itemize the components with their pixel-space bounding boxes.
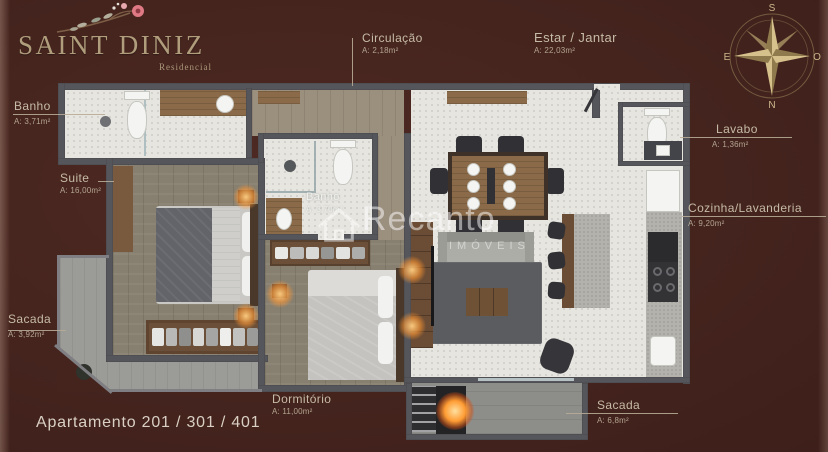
- logo-subtitle: Residencial: [128, 62, 212, 72]
- burner-icon: [666, 267, 675, 276]
- kitchen-island: [574, 214, 610, 308]
- lamp-glow-2: [233, 303, 259, 329]
- coffee-table: [466, 288, 508, 316]
- room-name: Circulação: [362, 31, 423, 46]
- wall-lavabo-top: [618, 102, 690, 107]
- floorplan-image: SAINT DINIZ Residencial S E O N Banho A:…: [0, 0, 828, 452]
- toilet-2: [333, 149, 353, 185]
- sink-2: [276, 208, 292, 230]
- sliding-glass-door: [478, 378, 574, 381]
- toilet-tank-2: [330, 140, 356, 148]
- left-edge-light: [0, 0, 10, 452]
- room-name: Banho: [306, 191, 342, 205]
- toilet-tank: [124, 91, 150, 100]
- suite-dresser: [113, 166, 133, 252]
- lavabo-sink: [656, 145, 670, 156]
- dining-chair: [546, 168, 564, 194]
- label-suite: Suite A: 16,00m²: [60, 171, 101, 196]
- lavabo-toilet-tank: [644, 108, 670, 116]
- room-name: Sacada: [597, 398, 640, 413]
- suite-bed-sheet: [212, 208, 240, 302]
- compass-rose-icon: S E O N: [720, 2, 824, 110]
- room-name: Banho: [14, 99, 51, 114]
- kitchen-sink: [650, 336, 676, 366]
- label-sacada-churrasqueira: Sacada: [597, 398, 640, 413]
- wall-sacada-bottom: [406, 434, 588, 440]
- label-sacada-esquerda: Sacada A: 3,92m²: [8, 312, 51, 340]
- balcony-rail-left: [57, 255, 60, 347]
- room-name: Lavabo: [716, 122, 758, 137]
- label-lavabo-area: A: 1,36m²: [712, 140, 748, 150]
- wall-lavabo-left: [618, 102, 623, 166]
- table-runner: [487, 168, 495, 204]
- balcony-rail-top: [57, 255, 109, 258]
- wall-suite-right: [258, 158, 265, 392]
- compass-n: N: [768, 100, 775, 110]
- compass-o: O: [813, 52, 821, 63]
- shower-head-icon: [100, 116, 111, 127]
- dorm-pillow-2: [378, 322, 393, 364]
- room-area: A: 22,03m²: [534, 46, 617, 56]
- wall-lavabo-bottom: [618, 161, 690, 166]
- plate: [467, 163, 480, 176]
- room-area: A: 2,18m²: [362, 46, 423, 56]
- grill-fire-glow: [436, 392, 474, 430]
- label-lavabo: Lavabo: [716, 122, 758, 137]
- label-leader-line: [352, 38, 353, 86]
- room-area: A: 3,71m²: [14, 117, 51, 127]
- balcony-rail-bottom: [110, 389, 262, 392]
- room-area: A: 6,8m²: [597, 416, 629, 426]
- bar-stool: [547, 221, 566, 240]
- tv-screen: [431, 246, 434, 326]
- compass-e: E: [724, 52, 731, 63]
- dorm-lamp-glow: [266, 280, 294, 308]
- label-banho-suite: Banho A: 3,71m²: [14, 99, 51, 127]
- burner-icon: [666, 283, 675, 292]
- lamp-glow: [233, 184, 259, 210]
- wall-sacada-right: [582, 383, 588, 440]
- living-sconce-glow: [398, 256, 426, 284]
- label-estar-jantar: Estar / Jantar A: 22,03m²: [534, 30, 617, 56]
- room-name: Dormitório: [272, 392, 331, 407]
- suite-bed-duvet: [156, 208, 212, 302]
- washer-fridge: [646, 170, 680, 212]
- plate: [503, 180, 516, 193]
- room-name: Suite: [60, 171, 101, 186]
- ladder-shelf: [412, 386, 436, 432]
- room-name: Sacada: [8, 312, 51, 327]
- label-leader-line: [680, 137, 792, 138]
- dorm-pillow: [378, 276, 393, 318]
- wall-right: [683, 83, 690, 384]
- room-name: Estar / Jantar: [534, 30, 617, 46]
- dining-chair: [430, 168, 448, 194]
- wall-suite-bottom: [106, 355, 268, 362]
- logo-title: SAINT DINIZ: [18, 30, 205, 61]
- burner-icon: [653, 267, 662, 276]
- wall-suite-left: [106, 158, 113, 362]
- oven-tower: [648, 232, 678, 262]
- label-dormitorio: Dormitório A: 11,00m²: [272, 392, 331, 417]
- label-cozinha: Cozinha/Lavanderia: [688, 201, 802, 216]
- label-leader-line: [566, 413, 678, 414]
- wall-banho-bottom: [58, 158, 264, 165]
- wall-dorm-bottom: [258, 385, 411, 392]
- bar-stool: [547, 281, 565, 299]
- suite-headboard: [250, 204, 258, 306]
- wall-banho2-left: [258, 133, 264, 163]
- wall-banho2-top: [258, 133, 378, 139]
- plate: [503, 163, 516, 176]
- compass-s: S: [769, 3, 776, 14]
- bar-stool: [547, 251, 566, 270]
- room-area: A: 1,36m²: [712, 140, 748, 150]
- room-area: A: 16,00m²: [60, 186, 101, 196]
- toilet: [127, 101, 147, 139]
- plate: [503, 197, 516, 210]
- floor-sacada-esquerda-2: [107, 362, 262, 389]
- watermark-subbrand: IMÓVEIS: [449, 240, 530, 252]
- watermark-brand: Recanto: [362, 200, 496, 239]
- plate: [467, 180, 480, 193]
- room-area: A: 11,00m²: [272, 407, 331, 417]
- rack-clothes: [272, 242, 368, 264]
- house-icon: [318, 206, 360, 244]
- label-leader-line: [682, 216, 826, 217]
- label-cozinha-area: A: 9,20m²: [688, 219, 724, 229]
- wall-banho-right: [246, 88, 252, 158]
- room-area: A: 3,92m²: [8, 330, 51, 340]
- shower-head-2-icon: [284, 160, 296, 172]
- room-area: A: 9,20m²: [688, 219, 724, 229]
- living-sconce-glow-2: [398, 312, 426, 340]
- entry-sideboard: [447, 91, 527, 104]
- sink: [216, 95, 234, 113]
- room-name: Cozinha/Lavanderia: [688, 201, 802, 216]
- hall-sideboard: [258, 91, 300, 104]
- label-circulacao: Circulação A: 2,18m²: [362, 31, 423, 56]
- burner-icon: [653, 283, 662, 292]
- wall-sacada-left: [406, 383, 412, 440]
- label-sacada-churrasqueira-area: A: 6,8m²: [597, 416, 629, 426]
- apartment-label: Apartamento 201 / 301 / 401: [36, 414, 260, 432]
- wall-left-banho: [58, 83, 65, 165]
